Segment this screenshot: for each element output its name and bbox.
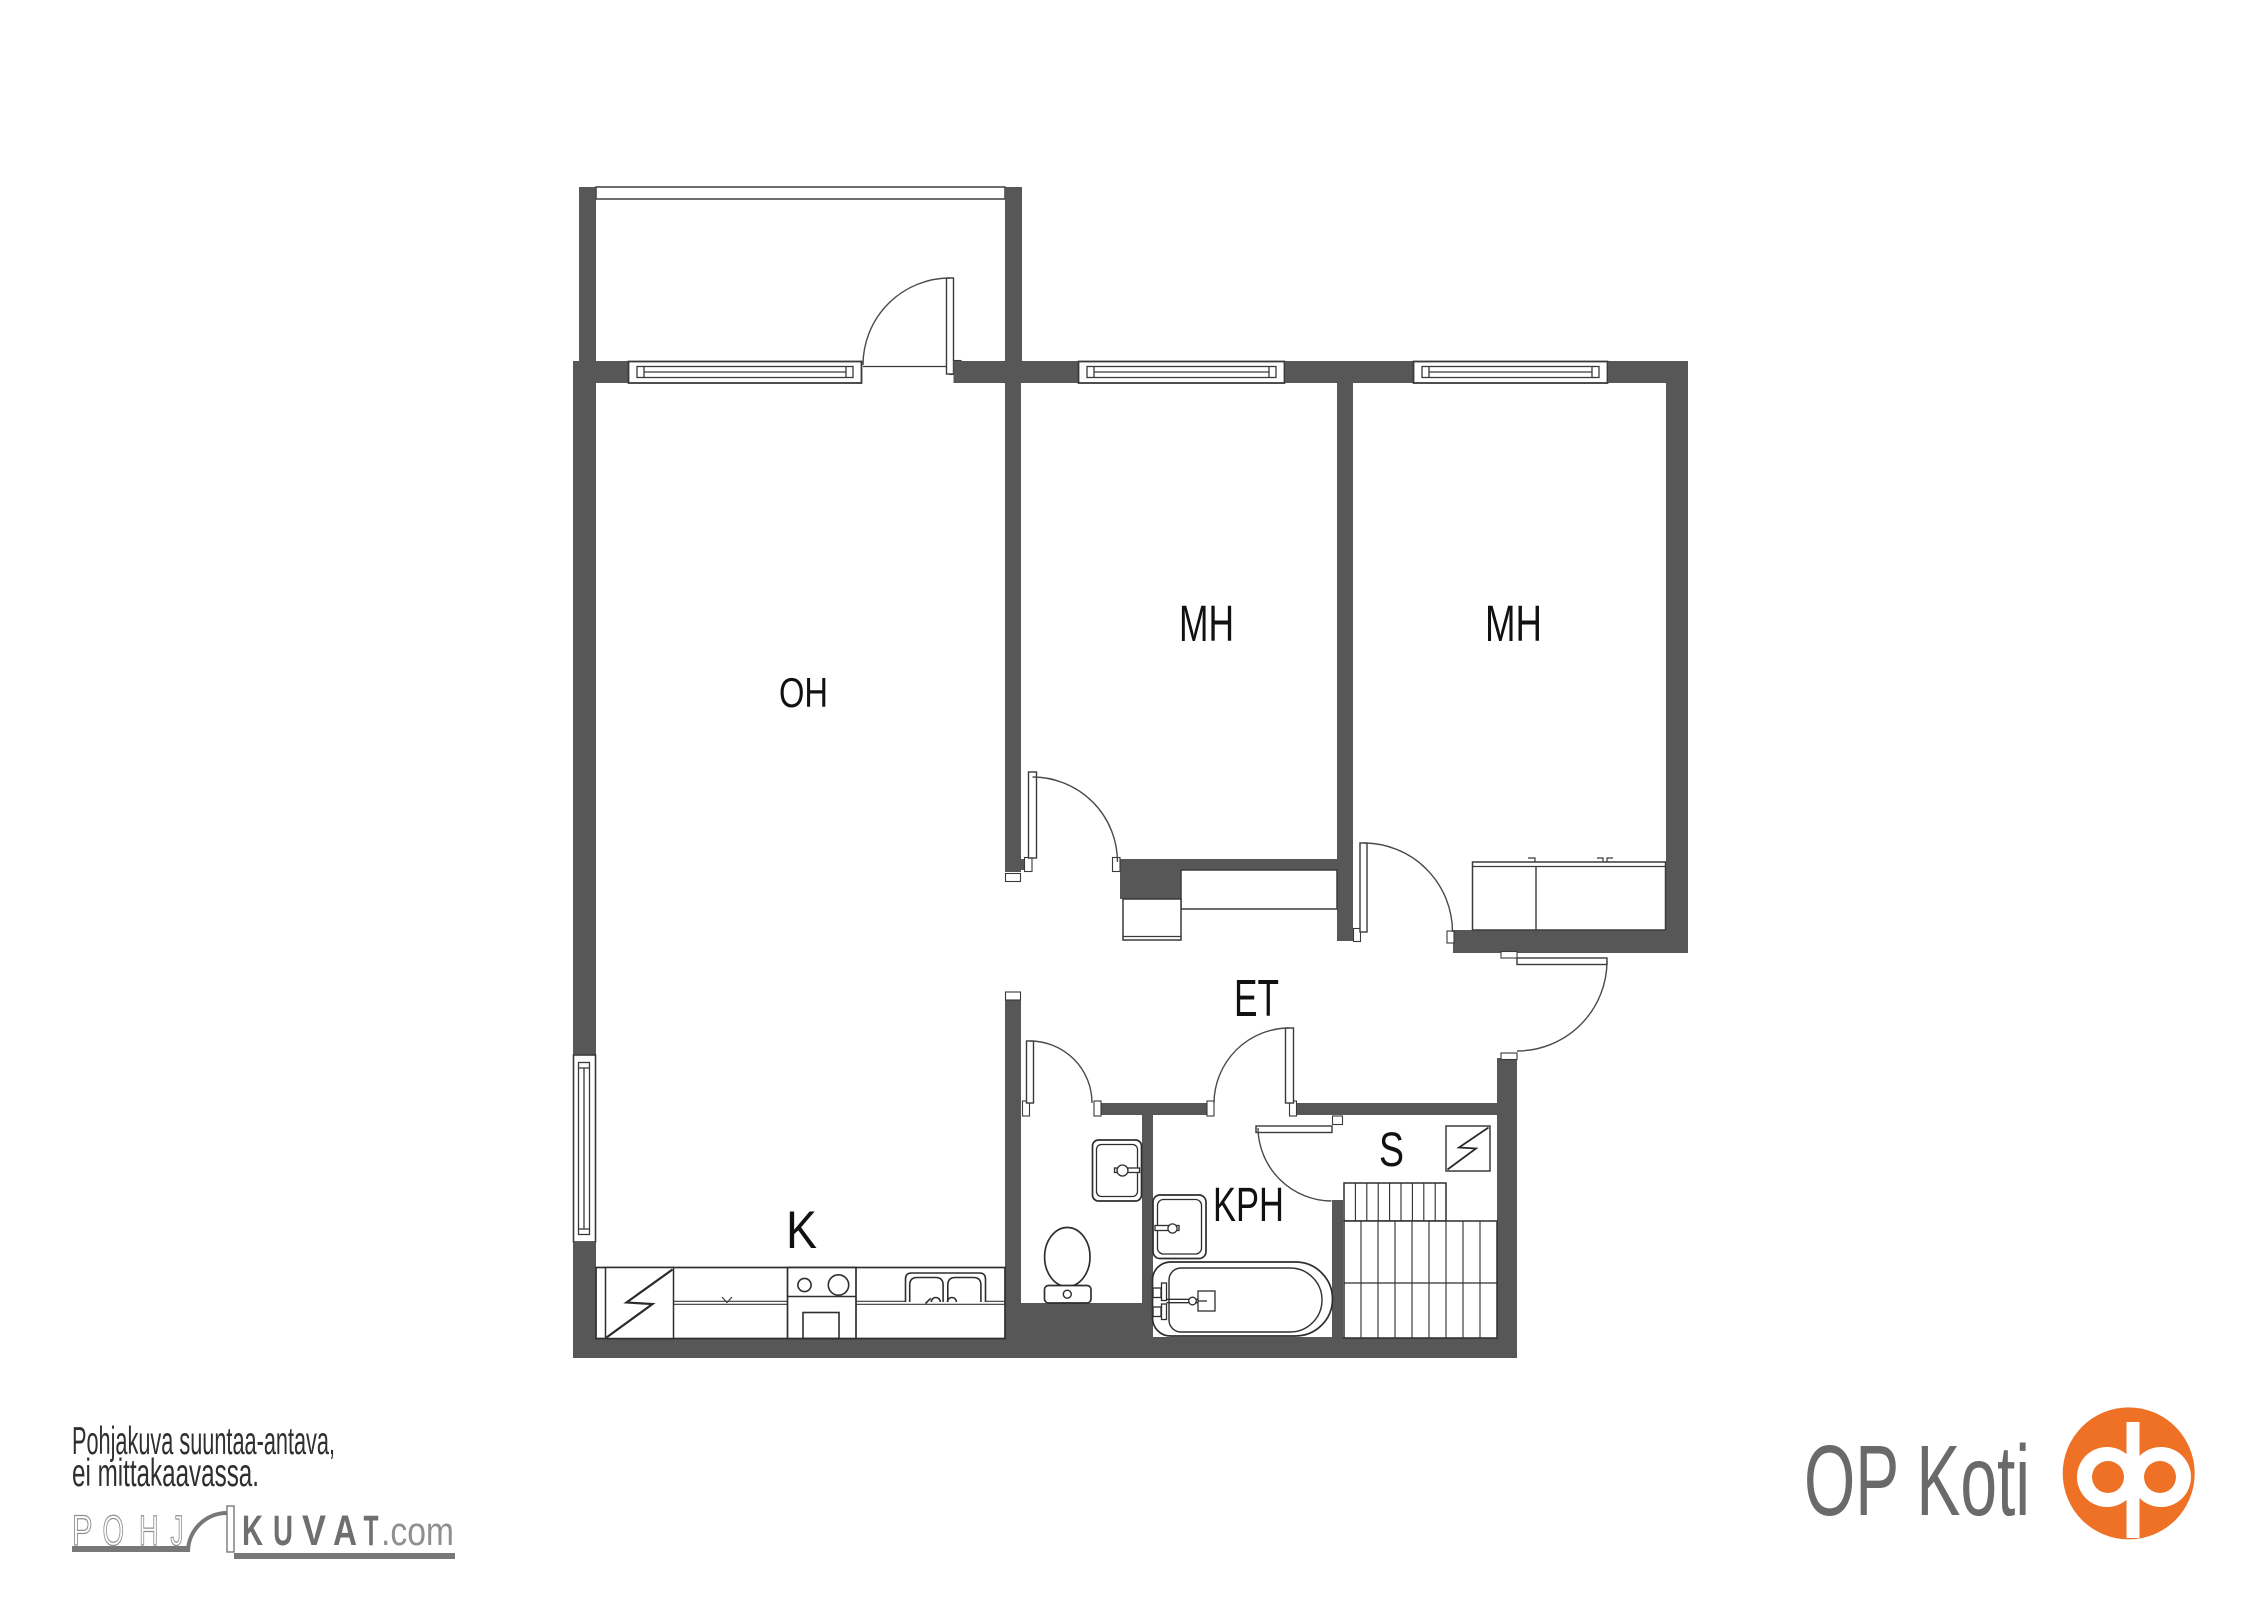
svg-text:T: T: [364, 1507, 379, 1555]
svg-text:S: S: [1379, 1124, 1404, 1177]
svg-text:U: U: [273, 1507, 293, 1555]
svg-text:MH: MH: [1485, 595, 1542, 652]
svg-text:OP Koti: OP Koti: [1804, 1425, 2030, 1537]
svg-text:ET: ET: [1234, 970, 1279, 1028]
svg-text:KPH: KPH: [1213, 1179, 1284, 1232]
svg-text:A: A: [333, 1507, 357, 1555]
svg-text:OH: OH: [779, 669, 828, 716]
svg-text:ei mittakaavassa.: ei mittakaavassa.: [72, 1452, 259, 1495]
svg-text:V: V: [302, 1507, 326, 1555]
svg-text:K: K: [242, 1507, 263, 1555]
svg-text:.com: .com: [381, 1510, 454, 1554]
svg-text:MH: MH: [1179, 595, 1234, 652]
svg-text:K: K: [786, 1201, 817, 1260]
